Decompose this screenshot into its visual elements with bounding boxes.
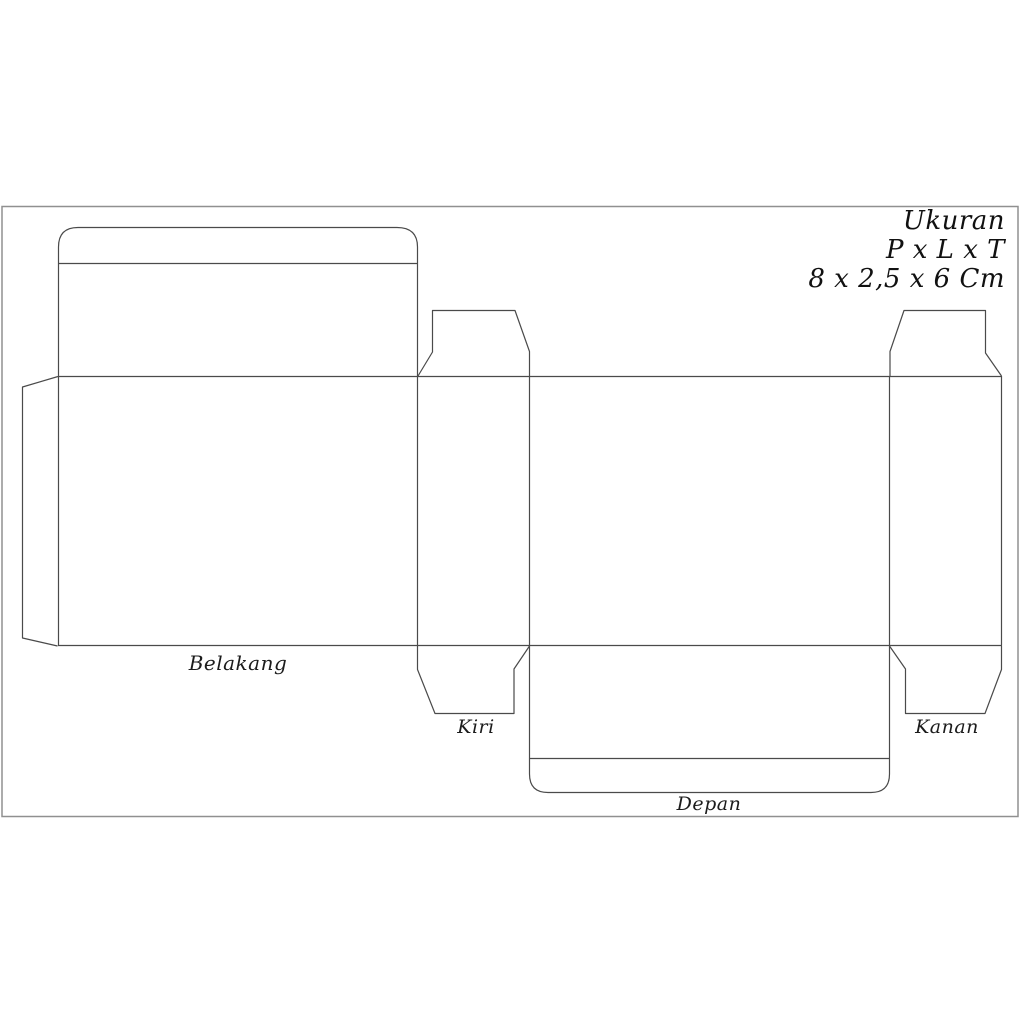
box-dieline-diagram xyxy=(0,0,1024,1024)
diagram-border xyxy=(2,207,1018,817)
dieline-canvas: Belakang Kiri Kanan Depan Ukuran P x L x… xyxy=(0,0,1024,1024)
left-top-flap-outline xyxy=(418,311,530,377)
front-tuck-flap-outline xyxy=(530,758,890,793)
label-front-panel: Depan xyxy=(677,793,742,815)
left-bottom-flap-outline xyxy=(418,646,530,714)
size-heading: Ukuran xyxy=(808,207,1005,236)
label-right-panel: Kanan xyxy=(915,716,979,738)
size-value: 8 x 2,5 x 6 Cm xyxy=(808,265,1005,294)
dieline-lines xyxy=(23,228,1003,793)
right-top-flap-outline xyxy=(890,311,1002,377)
label-left-panel: Kiri xyxy=(457,716,494,738)
size-formula: P x L x T xyxy=(808,236,1005,265)
right-bottom-flap-outline xyxy=(890,646,1002,714)
size-info-block: Ukuran P x L x T 8 x 2,5 x 6 Cm xyxy=(808,207,1005,294)
label-back-panel: Belakang xyxy=(189,651,288,675)
glue-flap-outline xyxy=(23,377,59,647)
lid-outline xyxy=(59,228,418,377)
